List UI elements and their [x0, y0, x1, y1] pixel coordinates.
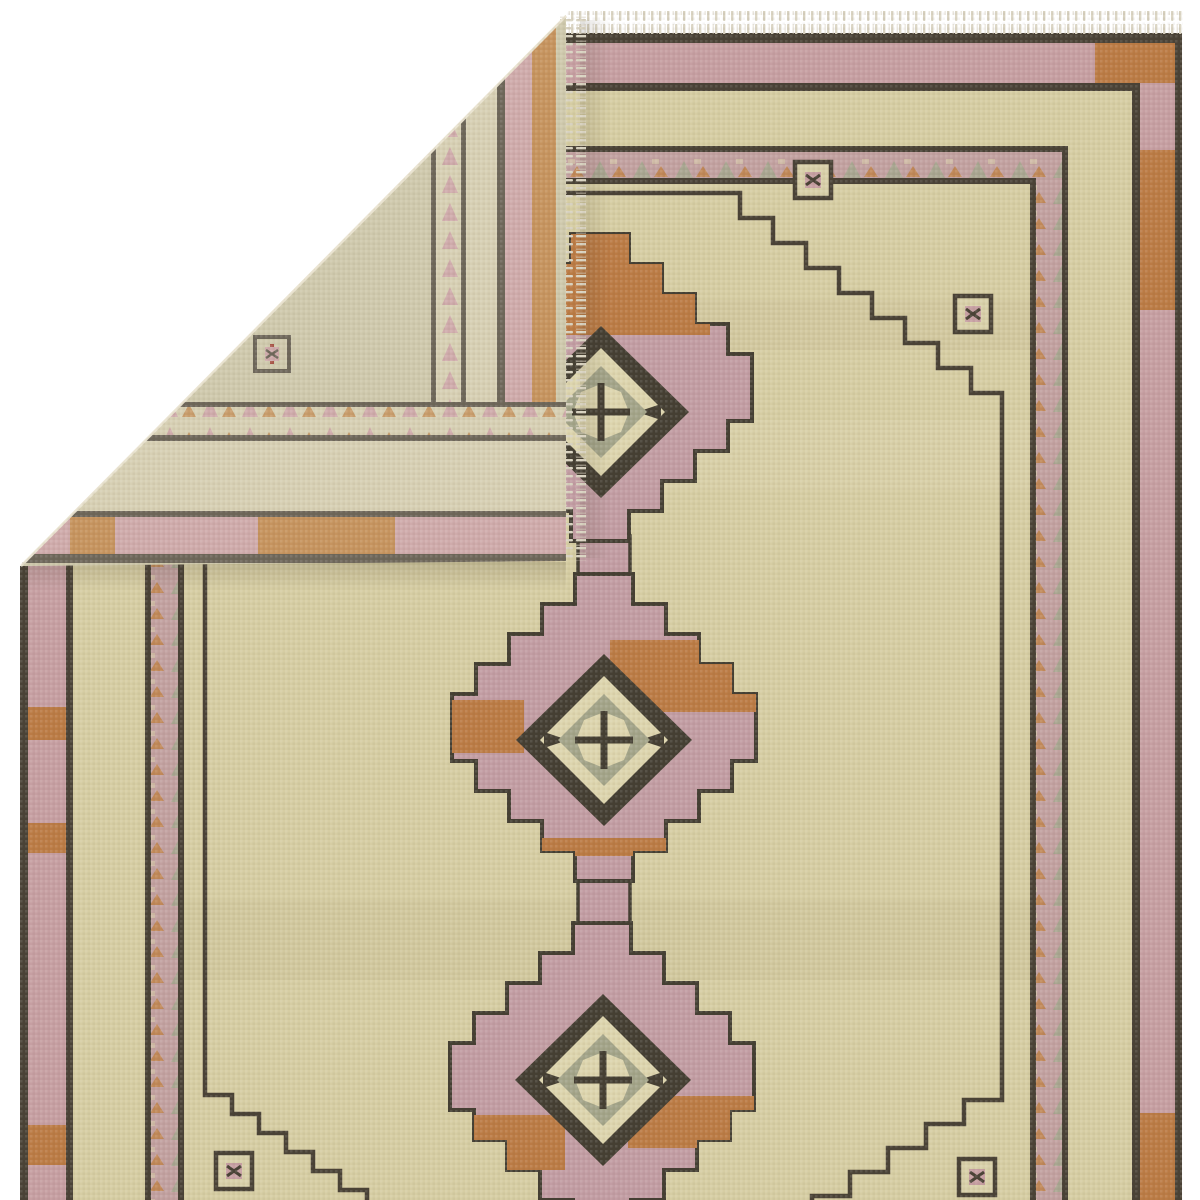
rug-product-photo — [0, 0, 1200, 1200]
rug-scene — [0, 0, 1200, 1200]
